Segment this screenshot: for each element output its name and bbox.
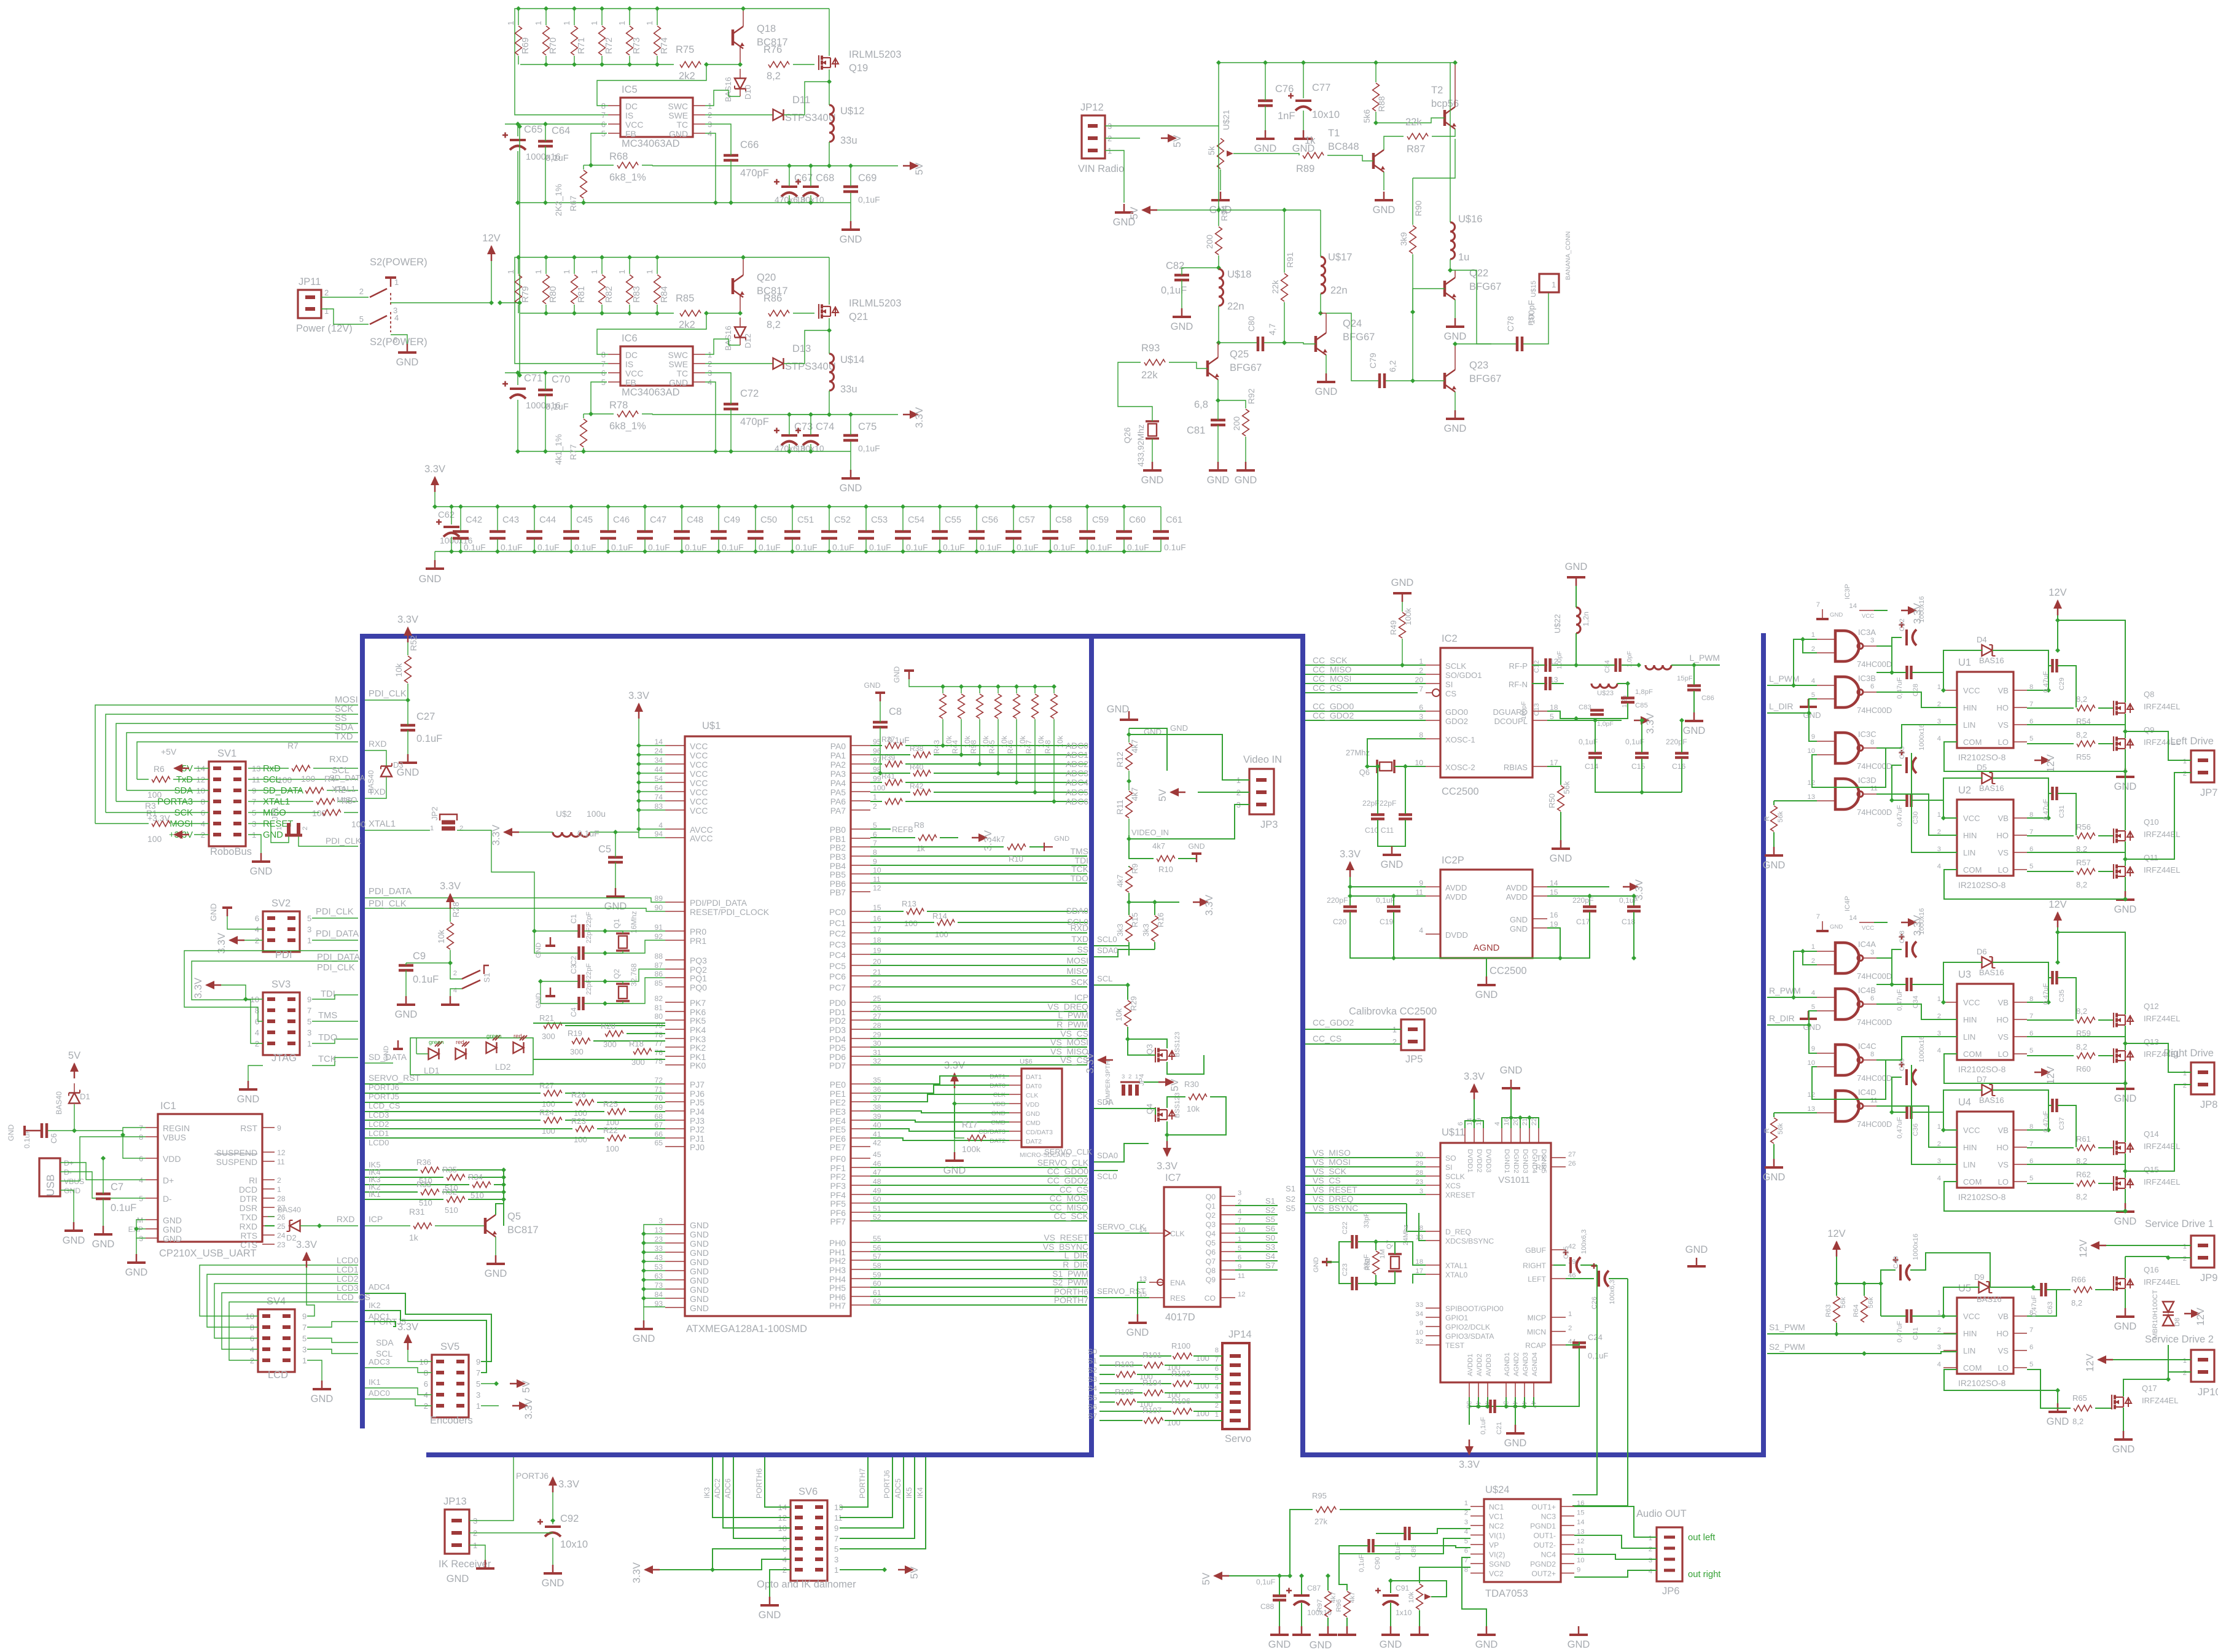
svg-text:XCS: XCS: [1445, 1182, 1461, 1190]
svg-text:P$1: P$1: [1528, 313, 1535, 325]
svg-text:PDI_CLK: PDI_CLK: [317, 963, 355, 973]
svg-text:RI: RI: [249, 1175, 257, 1185]
svg-text:VCC: VCC: [1963, 998, 1980, 1007]
svg-text:2: 2: [1811, 645, 1815, 653]
svg-text:SCK: SCK: [1071, 977, 1088, 987]
svg-text:100: 100: [873, 784, 886, 792]
svg-text:DVDD3: DVDD3: [1485, 1149, 1492, 1172]
svg-text:94: 94: [654, 830, 663, 838]
svg-text:7: 7: [139, 1124, 143, 1132]
svg-text:BFG67: BFG67: [1343, 331, 1375, 343]
svg-text:C51: C51: [797, 515, 814, 525]
svg-text:R64: R64: [1853, 1304, 1860, 1317]
svg-text:10: 10: [873, 866, 881, 875]
svg-text:46: 46: [873, 1159, 881, 1168]
svg-text:GND: GND: [535, 993, 542, 1008]
svg-text:5V: 5V: [520, 1381, 532, 1393]
svg-text:IK4: IK4: [916, 1487, 924, 1498]
svg-text:D+: D+: [163, 1175, 174, 1185]
svg-text:2: 2: [1811, 957, 1815, 965]
svg-text:GND: GND: [840, 233, 862, 245]
svg-text:VS_SCK: VS_SCK: [1313, 1166, 1347, 1176]
svg-text:R91: R91: [1285, 252, 1295, 268]
svg-text:1u: 1u: [1458, 251, 1469, 263]
svg-text:R21: R21: [539, 1013, 554, 1023]
svg-text:12V: 12V: [1827, 1228, 1845, 1239]
svg-text:C61: C61: [1166, 515, 1182, 525]
svg-text:Servo: Servo: [1225, 1433, 1251, 1444]
svg-text:HO: HO: [1996, 703, 2009, 712]
svg-text:CC_CS: CC_CS: [1313, 1034, 1341, 1043]
svg-text:C6: C6: [49, 1133, 58, 1144]
svg-text:26: 26: [873, 1003, 881, 1012]
svg-text:GND: GND: [1685, 1244, 1708, 1255]
svg-text:LCD1: LCD1: [337, 1264, 359, 1274]
svg-text:TC: TC: [676, 120, 688, 130]
svg-text:GND: GND: [991, 1110, 1006, 1117]
svg-text:GND: GND: [1763, 859, 1786, 871]
svg-text:R56: R56: [2076, 822, 2091, 832]
svg-text:1: 1: [307, 1039, 311, 1048]
svg-text:2: 2: [1464, 1510, 1468, 1517]
svg-text:Q21: Q21: [849, 311, 868, 322]
svg-text:TDO: TDO: [1071, 873, 1089, 883]
svg-text:100: 100: [1196, 1381, 1209, 1390]
svg-text:4: 4: [1811, 989, 1815, 997]
svg-text:GND: GND: [396, 356, 419, 368]
svg-text:IR2102SO-8: IR2102SO-8: [1958, 880, 2006, 890]
svg-text:0,1uF: 0,1uF: [1619, 896, 1638, 905]
svg-text:8: 8: [873, 848, 877, 857]
svg-text:3: 3: [302, 1345, 307, 1354]
svg-text:8,2: 8,2: [2076, 1192, 2087, 1201]
svg-text:4017D: 4017D: [1165, 1311, 1195, 1323]
svg-text:AVDD3: AVDD3: [1485, 1354, 1493, 1376]
svg-text:AVDD: AVDD: [1445, 892, 1467, 902]
svg-text:TDI: TDI: [321, 989, 335, 999]
svg-text:12V: 12V: [2048, 586, 2066, 598]
svg-text:C69: C69: [858, 172, 877, 184]
svg-text:12: 12: [1577, 1538, 1585, 1545]
svg-text:SDA: SDA: [376, 1338, 394, 1347]
svg-text:Q24: Q24: [1343, 318, 1362, 329]
svg-text:PF2: PF2: [830, 1172, 846, 1182]
svg-text:GND: GND: [1444, 330, 1467, 342]
svg-text:PF3: PF3: [830, 1181, 846, 1191]
svg-text:R60: R60: [2076, 1064, 2091, 1073]
svg-text:IR2102SO-8: IR2102SO-8: [1958, 1192, 2006, 1202]
svg-text:3: 3: [1649, 1557, 1652, 1564]
svg-text:PJ0: PJ0: [690, 1142, 705, 1152]
svg-text:AGND2: AGND2: [1513, 1352, 1520, 1376]
svg-text:GND: GND: [163, 1234, 182, 1244]
svg-text:R: R: [1763, 1128, 1771, 1133]
svg-text:VCC: VCC: [1963, 1312, 1980, 1321]
svg-text:IR2102SO-8: IR2102SO-8: [1958, 1378, 2006, 1388]
svg-text:5: 5: [873, 821, 877, 830]
svg-text:PORTH6: PORTH6: [755, 1468, 763, 1498]
svg-text:Left Drive: Left Drive: [2170, 735, 2214, 747]
svg-text:DAT2: DAT2: [990, 1138, 1006, 1145]
svg-text:GND: GND: [2047, 1416, 2069, 1427]
svg-text:0.1uF: 0.1uF: [1164, 542, 1186, 552]
svg-text:SV2: SV2: [271, 897, 291, 909]
svg-text:COM: COM: [1963, 1363, 1982, 1373]
svg-text:PA3: PA3: [830, 769, 846, 779]
svg-text:USB: USB: [44, 1174, 57, 1196]
svg-text:33u: 33u: [840, 134, 857, 146]
svg-text:0,1uF: 0,1uF: [1161, 284, 1187, 296]
svg-text:12V: 12V: [482, 232, 500, 244]
svg-text:16: 16: [1503, 1118, 1510, 1126]
svg-text:TXD: TXD: [240, 1212, 257, 1222]
svg-text:7: 7: [2029, 1327, 2033, 1334]
svg-text:9: 9: [873, 857, 877, 866]
svg-text:4,7: 4,7: [1267, 323, 1277, 335]
svg-text:R92: R92: [1246, 388, 1256, 404]
svg-text:SD_DATA: SD_DATA: [369, 1052, 407, 1062]
svg-text:NC2: NC2: [1489, 1522, 1504, 1530]
svg-text:89: 89: [654, 894, 663, 903]
svg-text:GND: GND: [1107, 703, 1130, 715]
svg-text:GND: GND: [1550, 852, 1572, 864]
svg-text:4: 4: [453, 987, 457, 994]
svg-text:IS: IS: [625, 111, 633, 120]
svg-text:S5: S5: [1265, 1215, 1275, 1224]
svg-text:PC4: PC4: [829, 950, 846, 960]
svg-text:DC: DC: [625, 350, 638, 360]
svg-text:VP: VP: [1489, 1541, 1499, 1549]
svg-text:SWE: SWE: [668, 111, 688, 120]
svg-text:VB: VB: [1998, 686, 2009, 695]
svg-text:2: 2: [277, 1176, 281, 1185]
svg-text:5V: 5V: [1169, 1079, 1181, 1091]
svg-text:9: 9: [307, 995, 311, 1004]
svg-text:GND: GND: [1830, 612, 1843, 618]
svg-text:XTAL1: XTAL1: [1445, 1261, 1468, 1270]
svg-text:XDCS/BSYNC: XDCS/BSYNC: [1445, 1237, 1494, 1245]
svg-text:R29: R29: [1129, 996, 1138, 1011]
svg-text:C34: C34: [1912, 995, 1919, 1008]
svg-text:62: 62: [873, 1297, 881, 1306]
svg-text:R6: R6: [154, 764, 165, 774]
svg-text:GND: GND: [311, 1393, 334, 1405]
svg-text:3: 3: [476, 1390, 480, 1400]
svg-text:Q15: Q15: [2144, 1165, 2159, 1174]
svg-text:LCD1: LCD1: [369, 1129, 389, 1138]
svg-text:40: 40: [873, 1121, 881, 1129]
svg-text:27: 27: [1568, 1151, 1576, 1158]
svg-text:7: 7: [873, 839, 877, 847]
svg-text:10: 10: [1577, 1557, 1585, 1564]
svg-text:GND: GND: [1310, 1639, 1332, 1651]
svg-text:GND: GND: [1141, 474, 1164, 486]
svg-text:3.3V: 3.3V: [523, 1398, 534, 1419]
svg-text:R46: R46: [1006, 740, 1015, 754]
svg-text:LO: LO: [1998, 1177, 2009, 1186]
svg-text:7: 7: [601, 111, 606, 120]
svg-text:SDA0: SDA0: [1066, 906, 1089, 916]
svg-text:R3: R3: [145, 801, 156, 811]
svg-text:10: 10: [1415, 1329, 1423, 1336]
svg-text:GND: GND: [250, 865, 273, 877]
svg-text:DVDD1: DVDD1: [1466, 1149, 1474, 1172]
svg-text:6: 6: [1419, 703, 1423, 712]
svg-text:D+: D+: [64, 1159, 74, 1167]
svg-text:GND: GND: [92, 1238, 115, 1250]
svg-text:PORTH7: PORTH7: [858, 1468, 867, 1498]
svg-text:S2: S2: [1265, 1206, 1275, 1215]
svg-text:6: 6: [1215, 1365, 1219, 1373]
svg-text:PQ1: PQ1: [690, 973, 707, 983]
svg-text:U$18: U$18: [1227, 268, 1251, 280]
svg-text:AVDD: AVDD: [1506, 892, 1528, 902]
svg-text:35: 35: [873, 1076, 881, 1085]
svg-text:7: 7: [2029, 1140, 2033, 1148]
svg-text:R_DIR: R_DIR: [1769, 1013, 1795, 1023]
svg-text:C90: C90: [1374, 1557, 1381, 1570]
svg-text:5: 5: [1215, 1374, 1219, 1382]
svg-text:SDA0: SDA0: [1097, 1151, 1118, 1160]
svg-text:SCL0: SCL0: [1097, 1172, 1117, 1181]
svg-text:ADC4: ADC4: [369, 1282, 390, 1292]
svg-text:PDI_DATA: PDI_DATA: [369, 887, 412, 897]
svg-text:11: 11: [1870, 785, 1878, 792]
svg-text:IRLML5203: IRLML5203: [849, 49, 901, 60]
svg-text:R22: R22: [603, 1126, 618, 1135]
svg-text:DTR: DTR: [240, 1194, 257, 1204]
svg-text:42: 42: [873, 1139, 881, 1147]
svg-text:6k8_1%: 6k8_1%: [609, 420, 646, 432]
svg-text:PB0: PB0: [830, 825, 846, 835]
svg-text:1nF: 1nF: [1278, 110, 1295, 122]
svg-text:DVDD2: DVDD2: [1475, 1149, 1483, 1172]
svg-text:PE7: PE7: [830, 1142, 846, 1152]
svg-text:R79: R79: [521, 286, 531, 303]
svg-text:LCD0: LCD0: [369, 1138, 389, 1147]
svg-text:74HC00D: 74HC00D: [1857, 706, 1892, 715]
svg-text:0,47uF: 0,47uF: [1896, 677, 1904, 699]
svg-text:C19: C19: [1380, 918, 1394, 926]
svg-text:84: 84: [654, 1290, 663, 1299]
svg-text:PDI_CLK: PDI_CLK: [369, 899, 407, 909]
svg-text:1M: 1M: [1379, 1249, 1386, 1259]
svg-text:R18: R18: [629, 1039, 644, 1048]
svg-text:14: 14: [1849, 602, 1857, 610]
svg-text:LIN: LIN: [1963, 1346, 1975, 1355]
svg-text:4: 4: [1419, 926, 1423, 935]
svg-text:32: 32: [873, 1057, 881, 1066]
svg-text:R83: R83: [632, 286, 642, 303]
svg-text:R11: R11: [1115, 800, 1125, 815]
svg-text:2: 2: [1215, 1402, 1219, 1409]
svg-text:3: 3: [1870, 637, 1874, 644]
svg-text:GND: GND: [1254, 142, 1277, 154]
svg-text:LD2: LD2: [495, 1062, 511, 1072]
svg-text:R_PWM: R_PWM: [1769, 986, 1801, 995]
svg-text:TXD: TXD: [335, 732, 353, 742]
svg-text:C79: C79: [1368, 353, 1378, 368]
svg-text:13: 13: [1807, 793, 1815, 801]
svg-text:AGND3: AGND3: [1522, 1352, 1529, 1376]
svg-text:LO: LO: [1998, 1363, 2009, 1373]
svg-text:GND: GND: [864, 681, 880, 690]
svg-text:VCC: VCC: [1862, 613, 1874, 620]
svg-text:100: 100: [542, 1126, 555, 1136]
svg-text:U5: U5: [1958, 1282, 1971, 1294]
svg-text:R15: R15: [1130, 913, 1139, 927]
svg-text:FB: FB: [625, 129, 636, 139]
svg-text:ADC3: ADC3: [1066, 768, 1088, 778]
svg-text:VS_MOSI: VS_MOSI: [1313, 1157, 1351, 1167]
svg-text:VS: VS: [1998, 720, 2009, 730]
svg-text:34: 34: [654, 756, 663, 765]
svg-text:2k2: 2k2: [679, 70, 695, 82]
svg-text:6: 6: [139, 1155, 143, 1163]
svg-text:3: 3: [1238, 1190, 1241, 1197]
svg-text:17: 17: [873, 925, 881, 933]
svg-text:Q1: Q1: [612, 919, 621, 929]
svg-text:C91: C91: [1396, 1584, 1410, 1592]
svg-text:66: 66: [654, 1130, 663, 1139]
svg-text:U3: U3: [1958, 968, 1971, 980]
svg-text:GND: GND: [1127, 1327, 1149, 1338]
svg-text:U4: U4: [1958, 1096, 1971, 1108]
svg-text:PA2: PA2: [830, 760, 846, 770]
svg-text:8: 8: [1215, 1347, 1219, 1354]
svg-text:0,1uF: 0,1uF: [1358, 1554, 1365, 1572]
svg-text:DGND1: DGND1: [1503, 1149, 1510, 1174]
svg-text:HO: HO: [1996, 1015, 2009, 1024]
svg-text:PK0: PK0: [690, 1061, 706, 1070]
svg-text:2: 2: [1568, 1325, 1572, 1332]
svg-text:VS1011: VS1011: [1498, 1175, 1530, 1185]
svg-text:R70: R70: [549, 37, 558, 54]
svg-text:2: 2: [1937, 1327, 1941, 1334]
svg-text:C68: C68: [816, 172, 834, 184]
svg-text:SDA: SDA: [1097, 1097, 1114, 1107]
svg-text:JP5: JP5: [1405, 1053, 1423, 1065]
svg-text:GND: GND: [690, 1229, 709, 1239]
svg-text:18: 18: [873, 936, 881, 945]
svg-text:BFG67: BFG67: [1469, 373, 1501, 384]
svg-text:VS_BSYNC: VS_BSYNC: [1313, 1203, 1358, 1213]
svg-text:SI: SI: [1445, 1163, 1453, 1172]
svg-text:1: 1: [302, 1356, 307, 1365]
svg-text:9: 9: [1577, 1567, 1580, 1574]
svg-text:5: 5: [2029, 1175, 2033, 1182]
svg-text:PB5: PB5: [830, 870, 846, 879]
svg-text:1: 1: [562, 270, 571, 274]
svg-text:S2: S2: [1286, 1194, 1295, 1204]
svg-text:C46: C46: [613, 515, 630, 525]
svg-text:C71: C71: [524, 372, 542, 384]
svg-text:21: 21: [1521, 1118, 1529, 1126]
svg-text:14: 14: [1550, 879, 1558, 887]
svg-text:JP14: JP14: [1228, 1328, 1252, 1340]
svg-text:VS_DREQ: VS_DREQ: [1313, 1194, 1354, 1204]
svg-text:9: 9: [834, 1524, 838, 1533]
svg-text:CC_GDO2: CC_GDO2: [1313, 711, 1354, 720]
svg-text:REGIN: REGIN: [163, 1123, 190, 1133]
svg-text:29: 29: [873, 1031, 881, 1039]
svg-text:200: 200: [1232, 416, 1241, 431]
svg-text:20: 20: [1415, 676, 1423, 684]
svg-text:74HC00D: 74HC00D: [1857, 808, 1892, 817]
svg-text:3.3V: 3.3V: [558, 1478, 579, 1490]
svg-text:4: 4: [394, 313, 399, 322]
svg-text:4: 4: [1494, 1122, 1501, 1126]
svg-text:68: 68: [654, 1112, 663, 1121]
svg-text:9: 9: [1419, 1320, 1423, 1327]
svg-text:6k8_1%: 6k8_1%: [609, 171, 646, 183]
svg-text:20: 20: [1512, 1118, 1520, 1126]
svg-text:R50: R50: [1547, 793, 1556, 808]
svg-text:22pF22pF: 22pF22pF: [585, 911, 593, 943]
svg-text:74: 74: [654, 793, 663, 801]
svg-text:470pF: 470pF: [740, 167, 769, 179]
svg-text:8: 8: [1870, 739, 1874, 746]
svg-text:19: 19: [1550, 920, 1558, 929]
svg-text:JP6: JP6: [1662, 1585, 1679, 1597]
svg-text:VDD: VDD: [992, 1101, 1006, 1108]
svg-text:Calibrovka CC2500: Calibrovka CC2500: [1349, 1005, 1437, 1017]
svg-text:22k: 22k: [1405, 116, 1422, 128]
svg-text:D1: D1: [80, 1092, 90, 1101]
svg-text:C45: C45: [576, 515, 593, 525]
svg-text:L_DIR: L_DIR: [1769, 701, 1793, 711]
svg-text:VCC: VCC: [690, 750, 708, 760]
svg-text:33: 33: [654, 1244, 663, 1253]
svg-text:PK4: PK4: [690, 1025, 706, 1035]
svg-text:JP2: JP2: [430, 807, 439, 820]
svg-text:R71: R71: [577, 37, 587, 54]
svg-text:28: 28: [277, 1194, 286, 1203]
svg-text:R32: R32: [442, 1187, 457, 1196]
svg-text:R98: R98: [969, 740, 978, 754]
svg-text:R103: R103: [1171, 1369, 1190, 1378]
svg-text:HIN: HIN: [1963, 1015, 1977, 1024]
svg-text:100: 100: [301, 774, 315, 784]
svg-text:S4: S4: [1265, 1252, 1275, 1261]
svg-text:S2_PWM: S2_PWM: [1769, 1342, 1805, 1352]
svg-text:74HC00D: 74HC00D: [1857, 1018, 1892, 1027]
svg-text:MOSI: MOSI: [1066, 956, 1088, 965]
svg-text:GND: GND: [64, 1186, 80, 1195]
svg-text:CO: CO: [1205, 1294, 1216, 1303]
svg-text:DVDD: DVDD: [1445, 930, 1468, 940]
svg-text:U2: U2: [1958, 784, 1971, 796]
svg-text:2: 2: [2183, 1082, 2187, 1089]
svg-text:U$1: U$1: [702, 720, 720, 731]
svg-text:C55: C55: [945, 515, 961, 525]
svg-text:82: 82: [654, 994, 663, 1003]
svg-text:4k7: 4k7: [1349, 1592, 1356, 1603]
svg-text:U$23: U$23: [1597, 690, 1614, 697]
svg-text:1: 1: [1937, 1309, 1941, 1317]
svg-text:3.3V: 3.3V: [424, 463, 445, 475]
svg-text:CC2500: CC2500: [1442, 785, 1479, 797]
svg-text:3.3V: 3.3V: [192, 978, 204, 999]
svg-text:R: R: [1763, 816, 1771, 821]
svg-text:C44: C44: [539, 515, 556, 525]
svg-text:JP1: JP1: [270, 807, 279, 820]
svg-text:S0: S0: [1265, 1233, 1275, 1242]
svg-text:4: 4: [1937, 863, 1941, 870]
svg-text:COM: COM: [1963, 1177, 1982, 1186]
svg-text:D12: D12: [743, 333, 752, 348]
svg-text:PD2: PD2: [829, 1016, 846, 1026]
